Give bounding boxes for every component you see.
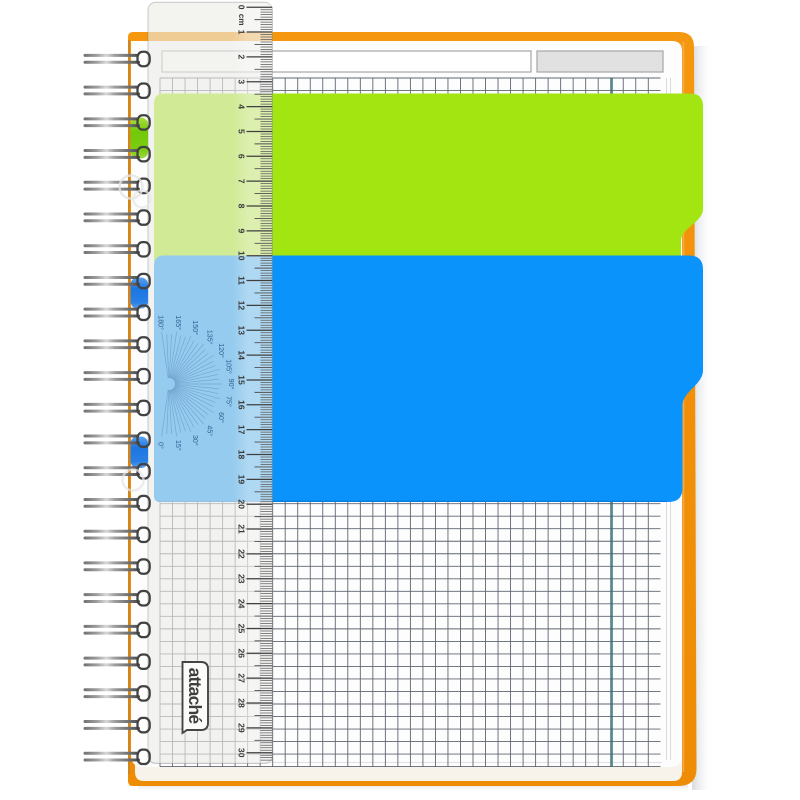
svg-text:16: 16 xyxy=(237,400,247,410)
svg-text:30: 30 xyxy=(237,748,247,758)
svg-text:17: 17 xyxy=(237,425,247,435)
svg-text:165°: 165° xyxy=(174,315,182,330)
svg-text:10: 10 xyxy=(236,251,246,261)
svg-text:135°: 135° xyxy=(206,330,214,345)
svg-text:120°: 120° xyxy=(217,343,225,358)
svg-text:14: 14 xyxy=(237,350,247,360)
svg-text:3: 3 xyxy=(237,79,247,84)
svg-text:9: 9 xyxy=(237,228,247,233)
svg-text:12: 12 xyxy=(237,301,247,311)
svg-text:attaché: attaché xyxy=(185,668,205,725)
svg-text:105°: 105° xyxy=(225,359,233,374)
svg-text:5: 5 xyxy=(237,129,247,134)
svg-text:4: 4 xyxy=(237,104,247,109)
svg-text:29: 29 xyxy=(237,723,247,733)
svg-text:19: 19 xyxy=(237,475,247,485)
svg-text:15°: 15° xyxy=(174,440,182,451)
svg-text:75°: 75° xyxy=(225,396,233,407)
svg-text:0: 0 xyxy=(237,5,247,10)
svg-text:21: 21 xyxy=(237,524,247,534)
svg-text:23: 23 xyxy=(237,574,247,584)
svg-text:22: 22 xyxy=(237,549,247,559)
svg-text:28: 28 xyxy=(237,698,247,708)
svg-text:7: 7 xyxy=(237,179,247,184)
svg-text:60°: 60° xyxy=(217,412,225,423)
svg-text:cm: cm xyxy=(237,14,246,26)
svg-text:1: 1 xyxy=(237,30,247,35)
svg-text:180°: 180° xyxy=(156,315,164,330)
svg-text:18: 18 xyxy=(237,450,247,460)
svg-text:24: 24 xyxy=(237,599,247,609)
svg-text:30°: 30° xyxy=(191,435,199,446)
svg-text:150°: 150° xyxy=(191,320,199,335)
svg-text:90°: 90° xyxy=(227,379,235,390)
svg-text:25: 25 xyxy=(237,624,247,634)
svg-text:26: 26 xyxy=(237,649,247,659)
svg-text:20: 20 xyxy=(237,499,247,509)
svg-text:45°: 45° xyxy=(206,425,214,436)
svg-text:15: 15 xyxy=(237,375,247,385)
svg-text:6: 6 xyxy=(237,154,247,159)
svg-text:11: 11 xyxy=(237,276,247,285)
svg-text:0°: 0° xyxy=(156,442,164,449)
svg-text:27: 27 xyxy=(237,673,247,683)
svg-text:8: 8 xyxy=(237,204,247,209)
svg-text:2: 2 xyxy=(237,55,247,60)
svg-text:13: 13 xyxy=(237,325,247,335)
